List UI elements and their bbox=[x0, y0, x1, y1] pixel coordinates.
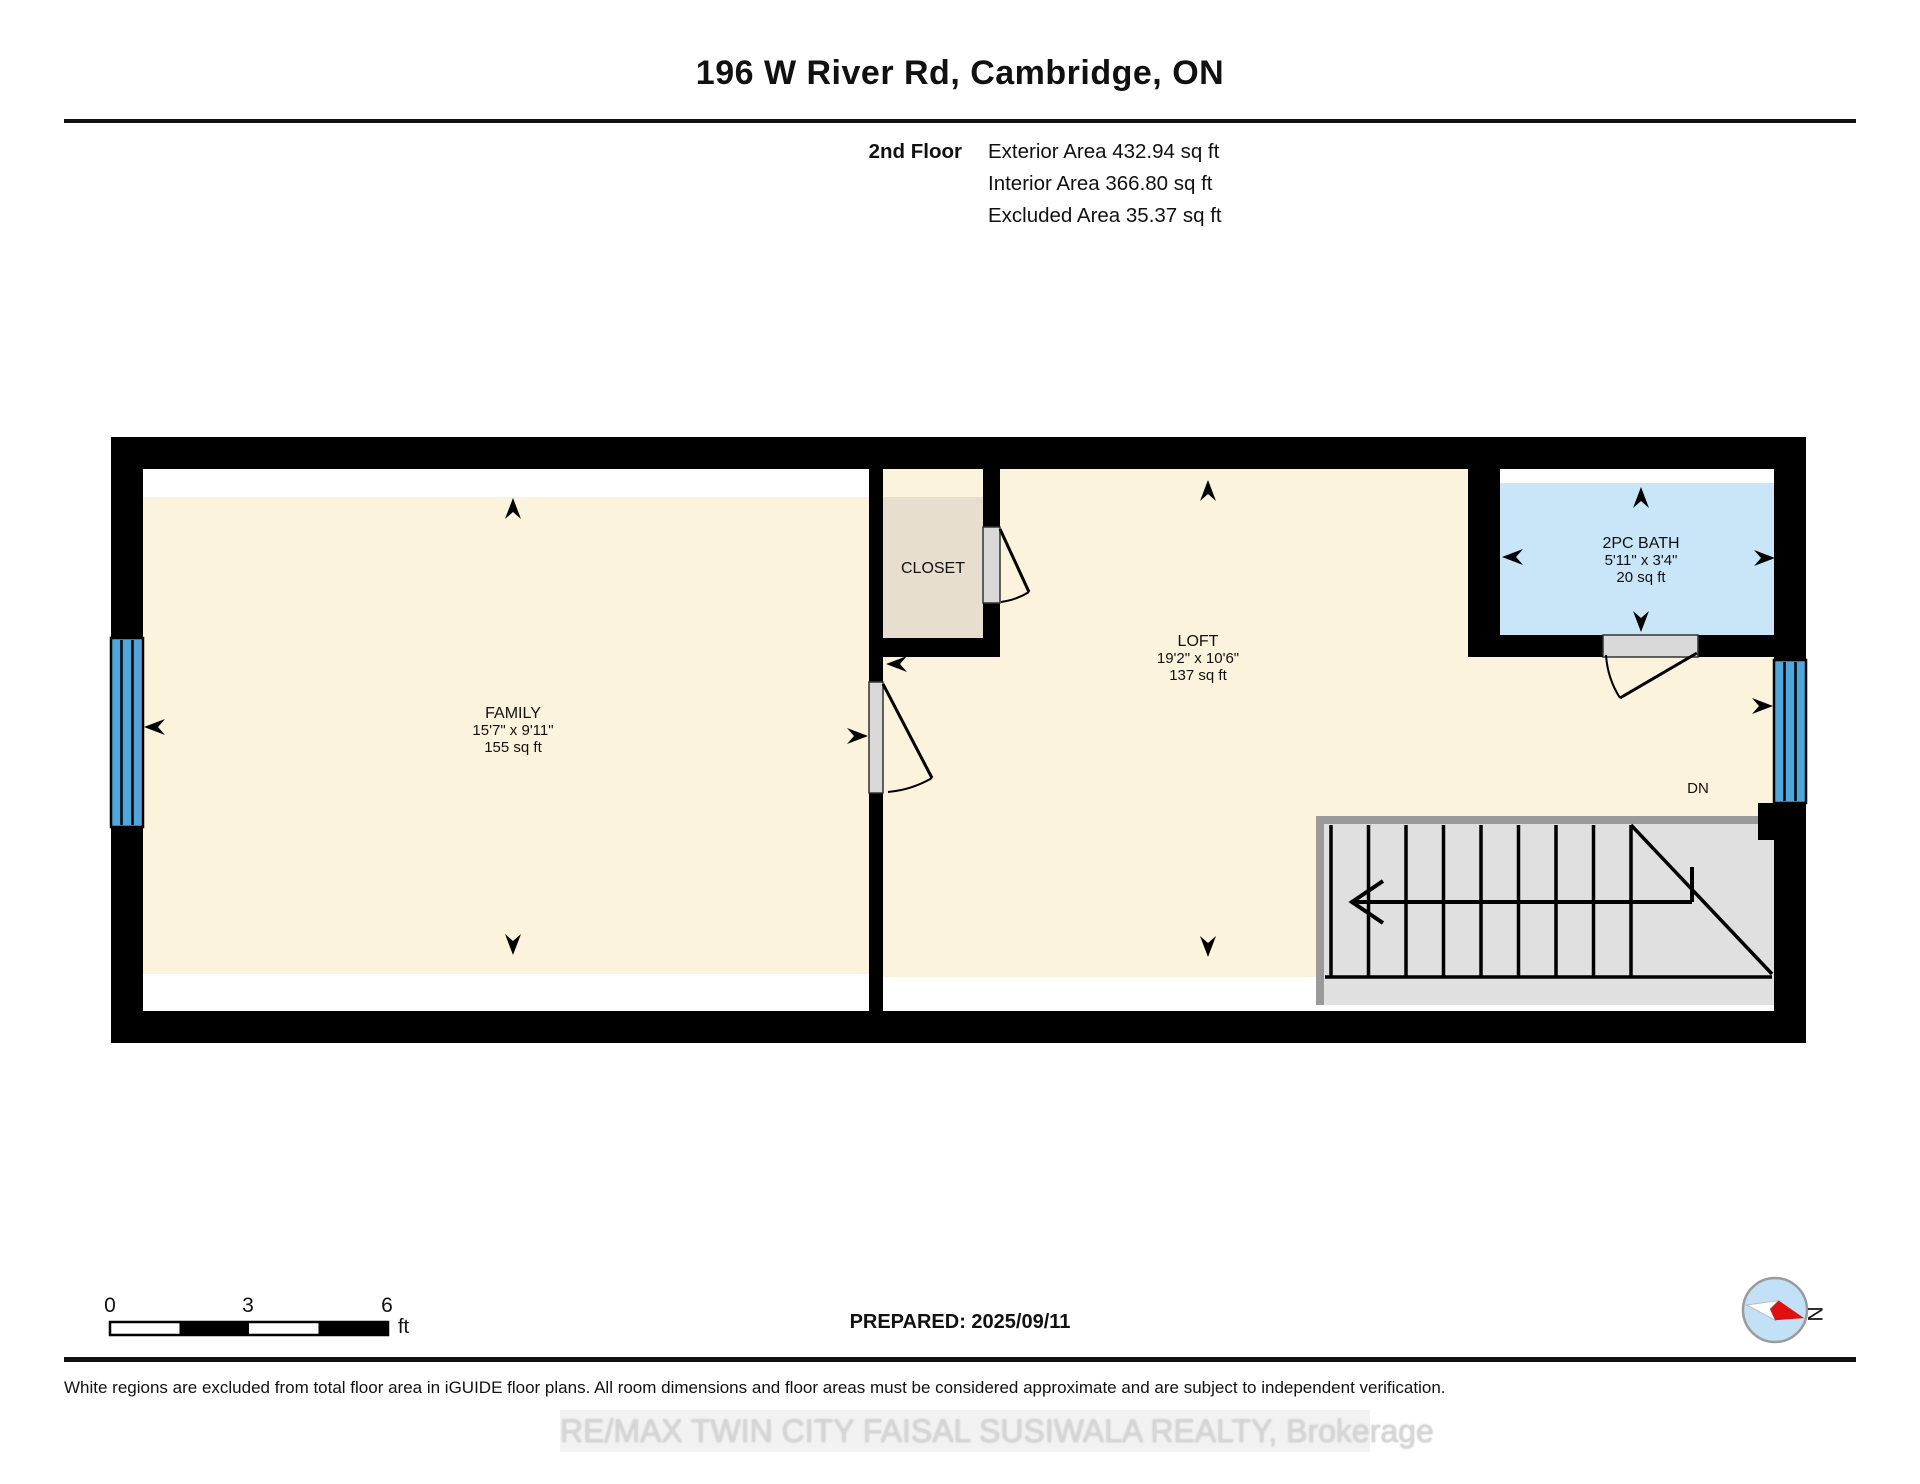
wall-closet-bottom bbox=[869, 638, 1000, 657]
loft-room-dims: 19'2" x 10'6" bbox=[1048, 650, 1348, 667]
brokerage-watermark: RE/MAX TWIN CITY FAISAL SUSIWALA REALTY,… bbox=[560, 1410, 1370, 1452]
family-room-area: 155 sq ft bbox=[363, 739, 663, 756]
wall-left-lower bbox=[111, 827, 143, 1043]
wall-closet-right-top bbox=[983, 468, 1000, 527]
wall-right-lower bbox=[1774, 803, 1806, 1043]
loft-floor-right bbox=[1468, 657, 1774, 820]
loft-room-area: 137 sq ft bbox=[1048, 667, 1348, 684]
bath-room-label: 2PC BATH 5'11" x 3'4" 20 sq ft bbox=[1491, 535, 1791, 586]
family-room-name: FAMILY bbox=[363, 705, 663, 722]
closet-room-label: CLOSET bbox=[858, 560, 1008, 578]
wall-bottom bbox=[111, 1011, 1806, 1043]
prepared-date: PREPARED: 2025/09/11 bbox=[0, 1311, 1920, 1334]
floorplan-drawing bbox=[0, 0, 1920, 1484]
loft-room-name: LOFT bbox=[1048, 633, 1348, 650]
wall-closet-right-bottom bbox=[983, 603, 1000, 638]
compass-north-label: N bbox=[1804, 1298, 1826, 1330]
staircase bbox=[1316, 816, 1776, 1005]
floorplan-page: 196 W River Rd, Cambridge, ON 2nd Floor … bbox=[0, 0, 1920, 1484]
wall-top bbox=[111, 437, 1806, 469]
stairs-down-label: DN bbox=[1676, 780, 1720, 797]
bath-room-dims: 5'11" x 3'4" bbox=[1491, 552, 1791, 569]
bath-room-area: 20 sq ft bbox=[1491, 569, 1791, 586]
footer-divider bbox=[64, 1357, 1856, 1362]
wall-bath-bottom-left bbox=[1468, 635, 1603, 657]
wall-left-upper bbox=[111, 437, 143, 638]
left-window bbox=[111, 638, 143, 827]
wall-partition-lower bbox=[869, 793, 883, 1011]
family-room-label: FAMILY 15'7" x 9'11" 155 sq ft bbox=[363, 705, 663, 756]
bath-room-name: 2PC BATH bbox=[1491, 535, 1791, 552]
right-window bbox=[1774, 660, 1806, 803]
wall-right-notch bbox=[1758, 803, 1774, 840]
disclaimer-text: White regions are excluded from total fl… bbox=[64, 1378, 1864, 1398]
wall-bath-bottom-right bbox=[1698, 635, 1774, 657]
family-room-dims: 15'7" x 9'11" bbox=[363, 722, 663, 739]
loft-room-label: LOFT 19'2" x 10'6" 137 sq ft bbox=[1048, 633, 1348, 684]
